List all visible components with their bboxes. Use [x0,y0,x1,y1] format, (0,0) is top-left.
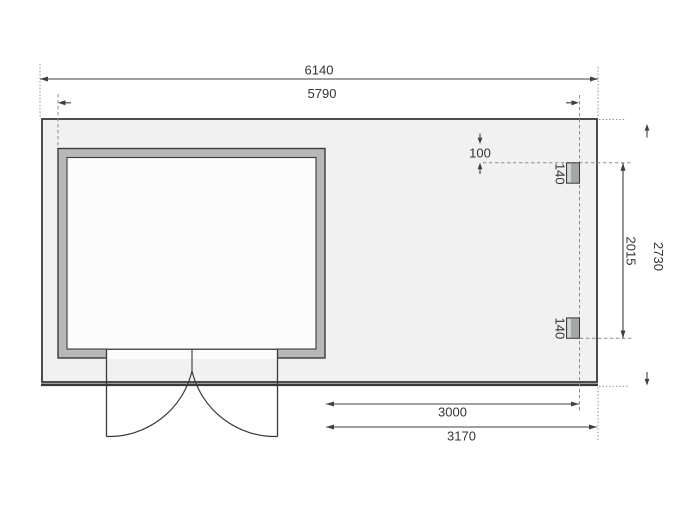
dim-label-annex-inner: 3000 [438,405,467,420]
technical-drawing: 6140 5790 100 140 140 2015 2730 3000 317… [0,0,700,525]
dim-label-total-width: 6140 [305,63,334,78]
dim-label-total-depth: 2730 [651,242,666,271]
dim-label-post-size-bottom: 140 [553,318,568,340]
floor-plan-svg: 6140 5790 100 140 140 2015 2730 3000 317… [0,0,700,525]
dim-arrows-total-depth [645,124,650,386]
dim-label-offset-small: 100 [469,146,491,161]
dim-label-post-size-top: 140 [553,163,568,185]
dim-label-body-width: 5790 [308,86,337,101]
cabin-interior [67,158,316,350]
dim-label-post-spacing: 2015 [624,237,639,266]
dim-label-annex-outer: 3170 [447,429,476,444]
